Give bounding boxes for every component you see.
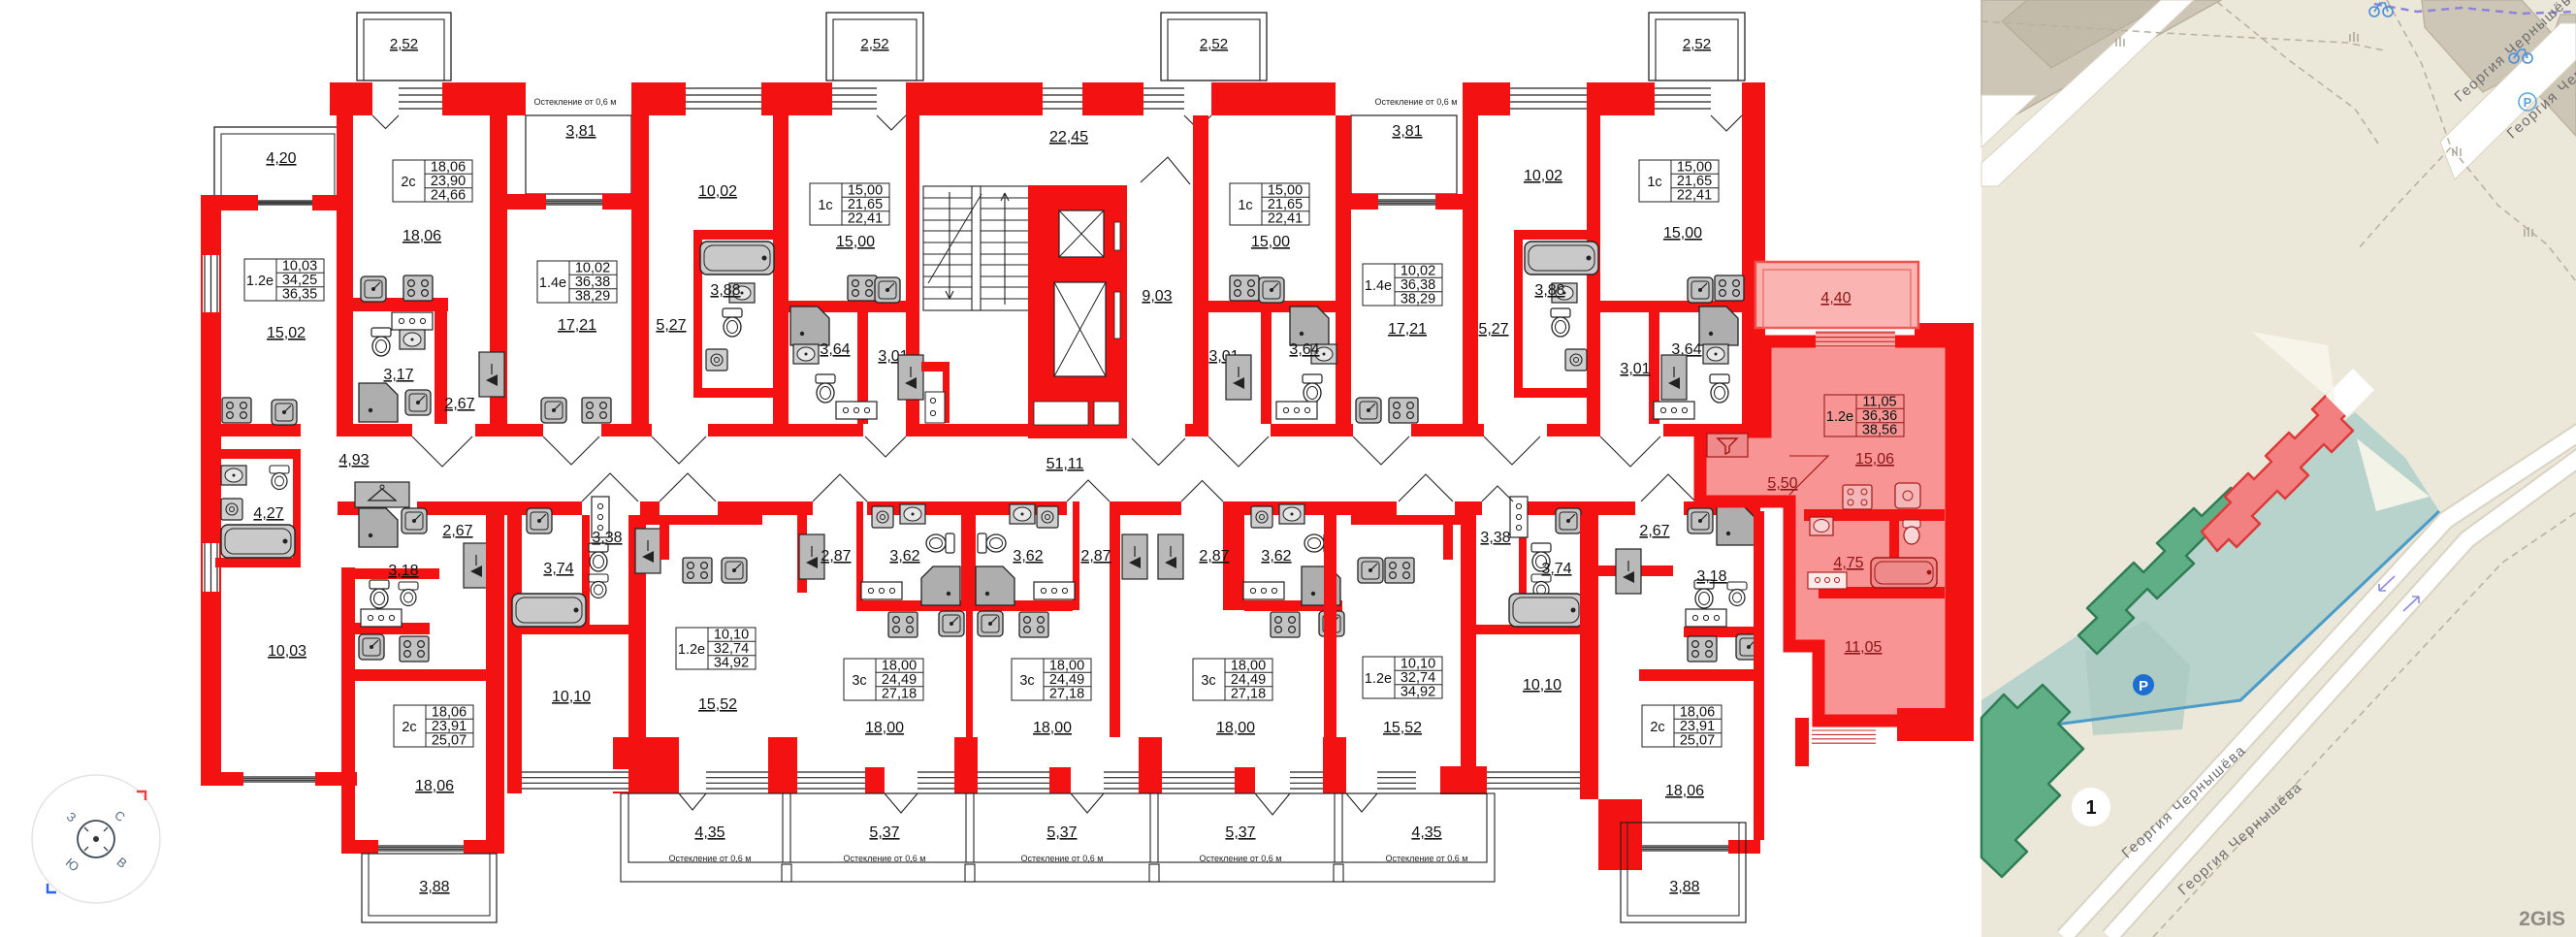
svg-text:18,00: 18,00 xyxy=(1033,720,1072,736)
svg-text:2,52: 2,52 xyxy=(1683,36,1711,52)
svg-text:Остекление от 0,6 м: Остекление от 0,6 м xyxy=(534,97,617,107)
svg-text:15,02: 15,02 xyxy=(267,325,306,341)
svg-text:1с: 1с xyxy=(1238,198,1252,213)
svg-text:51,11: 51,11 xyxy=(1046,456,1084,472)
svg-text:Остекление от 0,6 м: Остекление от 0,6 м xyxy=(1375,97,1458,107)
svg-text:15,00: 15,00 xyxy=(1663,225,1702,242)
svg-text:3,01: 3,01 xyxy=(1620,361,1650,377)
svg-text:10,10: 10,10 xyxy=(552,689,591,705)
svg-text:1.2е: 1.2е xyxy=(678,642,705,658)
svg-text:25,07: 25,07 xyxy=(1680,732,1715,748)
svg-text:2,52: 2,52 xyxy=(390,36,418,52)
svg-text:4,20: 4,20 xyxy=(266,150,296,167)
svg-text:10,02: 10,02 xyxy=(1524,168,1562,184)
svg-text:27,18: 27,18 xyxy=(1049,686,1084,701)
svg-text:4,27: 4,27 xyxy=(253,505,283,522)
svg-text:3с: 3с xyxy=(1201,673,1215,689)
svg-text:Остекление от 0,6 м: Остекление от 0,6 м xyxy=(669,854,752,863)
svg-text:P: P xyxy=(2139,678,2148,695)
svg-text:2,67: 2,67 xyxy=(442,523,472,539)
svg-text:3,64: 3,64 xyxy=(1289,341,1319,358)
svg-text:2,67: 2,67 xyxy=(1639,523,1669,539)
svg-text:Остекление от 0,6 м: Остекление от 0,6 м xyxy=(844,854,926,863)
svg-text:18,00: 18,00 xyxy=(865,720,904,736)
svg-text:11,05: 11,05 xyxy=(1845,639,1883,656)
svg-text:1с: 1с xyxy=(818,198,832,213)
svg-text:3,81: 3,81 xyxy=(1392,123,1422,140)
svg-text:17,21: 17,21 xyxy=(1388,321,1427,338)
svg-text:3с: 3с xyxy=(852,673,866,689)
svg-text:27,18: 27,18 xyxy=(1231,686,1266,701)
svg-text:3,38: 3,38 xyxy=(1480,530,1510,546)
svg-text:5,27: 5,27 xyxy=(1478,321,1508,338)
svg-text:2,87: 2,87 xyxy=(1080,548,1111,565)
svg-text:3,62: 3,62 xyxy=(889,548,919,565)
svg-text:3,81: 3,81 xyxy=(565,123,596,140)
svg-text:5,37: 5,37 xyxy=(869,824,899,841)
svg-text:1.2е: 1.2е xyxy=(1365,671,1392,687)
svg-text:15,52: 15,52 xyxy=(1383,720,1422,736)
svg-text:25,07: 25,07 xyxy=(432,732,467,748)
svg-text:3,88: 3,88 xyxy=(1669,879,1699,895)
svg-text:Остекление от 0,6 м: Остекление от 0,6 м xyxy=(1021,854,1104,863)
svg-text:1.2е: 1.2е xyxy=(1826,409,1853,425)
svg-text:34,92: 34,92 xyxy=(1401,684,1435,699)
svg-text:2с: 2с xyxy=(401,175,415,190)
svg-text:27,18: 27,18 xyxy=(882,686,917,701)
svg-text:38,29: 38,29 xyxy=(575,288,610,304)
svg-text:4,93: 4,93 xyxy=(338,452,369,468)
svg-text:4,35: 4,35 xyxy=(694,824,724,841)
svg-text:2,87: 2,87 xyxy=(821,548,851,565)
svg-text:2,52: 2,52 xyxy=(1200,36,1228,52)
svg-text:2с: 2с xyxy=(402,720,416,735)
svg-text:10,10: 10,10 xyxy=(1523,677,1562,694)
svg-text:3,62: 3,62 xyxy=(1261,548,1291,565)
svg-text:38,56: 38,56 xyxy=(1862,422,1897,437)
svg-text:36,35: 36,35 xyxy=(282,286,317,302)
svg-text:Остекление от 0,6 м: Остекление от 0,6 м xyxy=(1200,854,1282,863)
svg-text:18,06: 18,06 xyxy=(1665,783,1704,799)
svg-text:15,52: 15,52 xyxy=(698,696,737,713)
svg-text:3,64: 3,64 xyxy=(820,341,850,358)
svg-text:2с: 2с xyxy=(1650,720,1664,735)
svg-text:18,06: 18,06 xyxy=(415,778,454,794)
svg-text:4,35: 4,35 xyxy=(1411,824,1441,841)
svg-text:10,03: 10,03 xyxy=(268,643,306,660)
svg-text:24,66: 24,66 xyxy=(431,187,466,203)
svg-text:2GIS: 2GIS xyxy=(2519,908,2565,930)
svg-text:3,18: 3,18 xyxy=(388,563,418,579)
svg-text:1: 1 xyxy=(2085,797,2096,819)
svg-text:15,06: 15,06 xyxy=(1855,451,1894,468)
svg-text:2,87: 2,87 xyxy=(1199,548,1229,565)
svg-text:15,00: 15,00 xyxy=(836,234,875,250)
svg-text:10,02: 10,02 xyxy=(698,183,737,200)
svg-text:3,88: 3,88 xyxy=(419,879,449,895)
svg-text:17,21: 17,21 xyxy=(558,317,596,334)
svg-text:3,88: 3,88 xyxy=(710,282,740,299)
svg-text:18,06: 18,06 xyxy=(402,228,441,244)
svg-text:5,50: 5,50 xyxy=(1767,475,1797,492)
svg-text:1.2е: 1.2е xyxy=(246,274,274,289)
svg-text:5,27: 5,27 xyxy=(656,317,686,334)
svg-text:3,17: 3,17 xyxy=(383,367,413,383)
svg-text:34,92: 34,92 xyxy=(714,655,749,670)
svg-text:3,74: 3,74 xyxy=(1541,561,1571,577)
svg-text:3,88: 3,88 xyxy=(1534,282,1564,299)
svg-text:1.4е: 1.4е xyxy=(1365,278,1392,294)
svg-text:3,62: 3,62 xyxy=(1013,548,1043,565)
svg-text:2,67: 2,67 xyxy=(444,396,474,412)
svg-text:22,41: 22,41 xyxy=(1268,210,1303,226)
svg-text:22,41: 22,41 xyxy=(848,210,883,226)
svg-text:3с: 3с xyxy=(1019,673,1034,689)
svg-text:3,38: 3,38 xyxy=(592,530,622,546)
svg-text:2,52: 2,52 xyxy=(860,36,888,52)
svg-text:18,00: 18,00 xyxy=(1216,720,1255,736)
svg-text:22,41: 22,41 xyxy=(1677,187,1712,203)
svg-text:5,37: 5,37 xyxy=(1225,824,1255,841)
svg-text:1.4е: 1.4е xyxy=(539,275,566,291)
svg-text:Остекление от 0,6 м: Остекление от 0,6 м xyxy=(1386,854,1468,863)
svg-text:22,45: 22,45 xyxy=(1049,129,1088,145)
svg-text:9,03: 9,03 xyxy=(1142,288,1172,305)
svg-text:4,40: 4,40 xyxy=(1820,290,1851,307)
svg-text:3,74: 3,74 xyxy=(543,561,573,577)
svg-text:38,29: 38,29 xyxy=(1401,291,1435,307)
svg-text:5,37: 5,37 xyxy=(1046,824,1077,841)
svg-text:1с: 1с xyxy=(1647,175,1661,190)
svg-text:4,75: 4,75 xyxy=(1833,555,1863,571)
svg-text:3,18: 3,18 xyxy=(1696,568,1726,585)
svg-text:15,00: 15,00 xyxy=(1251,234,1290,250)
